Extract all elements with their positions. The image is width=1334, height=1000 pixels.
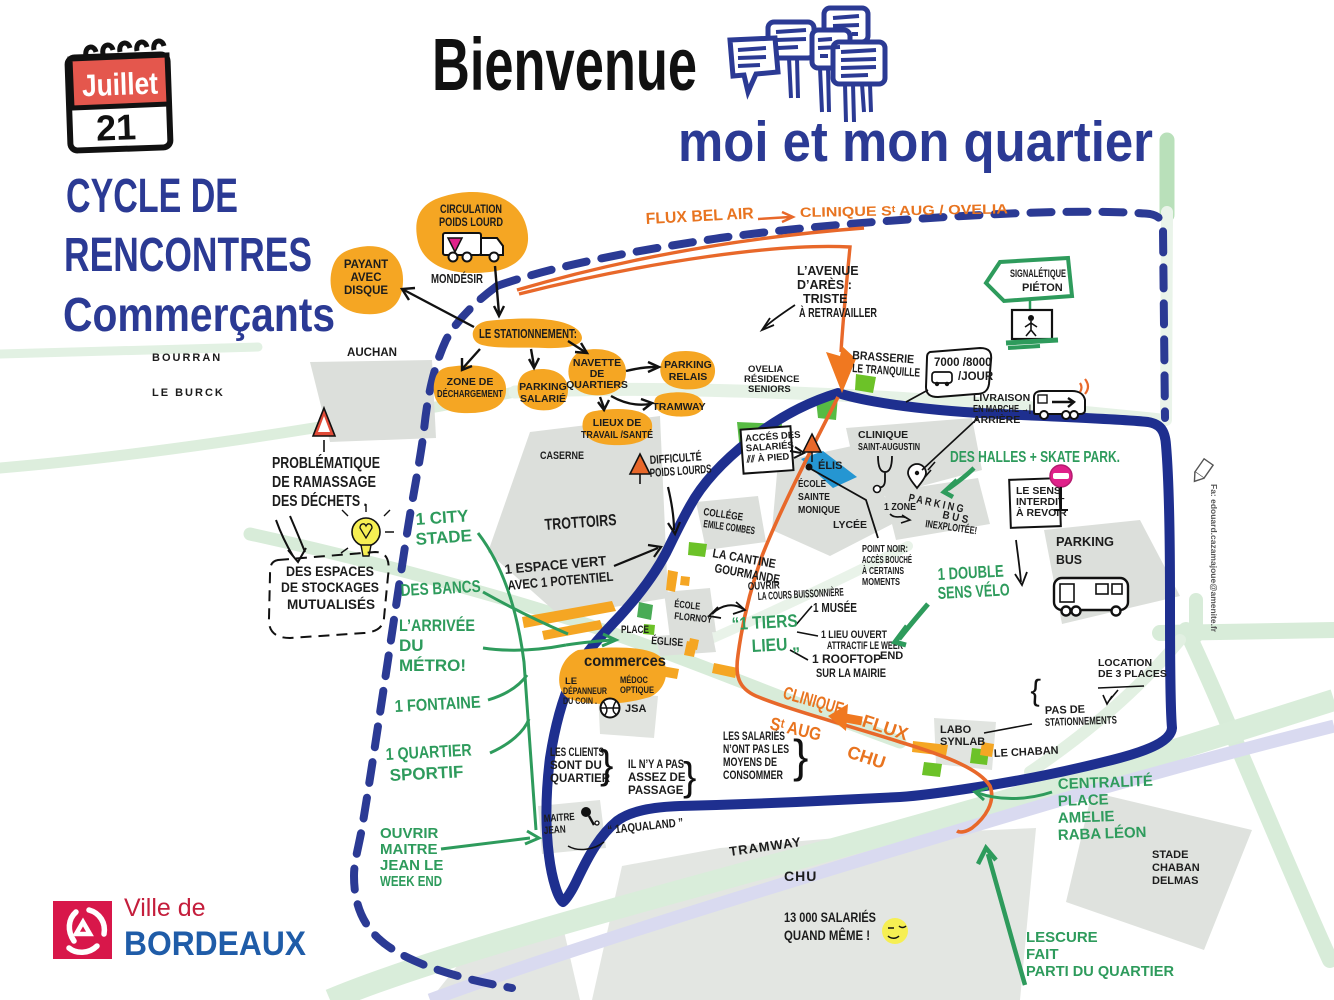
svg-text:LABO: LABO (940, 724, 972, 736)
svg-text:LIEUX DE: LIEUX DE (593, 417, 641, 429)
svg-text:POINT NOIR:: POINT NOIR: (862, 544, 908, 555)
svg-text:SYNLAB: SYNLAB (940, 736, 985, 748)
svg-text:commerces: commerces (584, 653, 666, 670)
svg-text:N’ONT PAS LES: N’ONT PAS LES (723, 744, 789, 756)
svg-text:JEAN LE: JEAN LE (380, 857, 443, 874)
svg-text:MAITRE: MAITRE (543, 811, 575, 825)
svg-text:PIÉTON: PIÉTON (1022, 281, 1063, 294)
svg-text:DU: DU (399, 636, 424, 655)
svg-text:FAIT: FAIT (1026, 946, 1059, 963)
svg-text:moi et mon quartier: moi et mon quartier (678, 110, 1153, 174)
svg-text:QUARTIERS: QUARTIERS (566, 379, 628, 391)
svg-text:SENIORS: SENIORS (748, 384, 791, 395)
svg-text:}: } (683, 755, 696, 799)
svg-text:TRAMWAY: TRAMWAY (652, 401, 705, 413)
svg-text:ÉCOLE: ÉCOLE (798, 477, 826, 490)
svg-text:1 MUSÉE: 1 MUSÉE (813, 600, 857, 615)
svg-text:Ville de: Ville de (124, 894, 206, 922)
svg-text:PASSAGE: PASSAGE (628, 785, 684, 797)
svg-text:SPORTIF: SPORTIF (389, 762, 464, 785)
svg-text:CIRCULATION: CIRCULATION (440, 204, 502, 216)
svg-text:PROBLÉMATIQUE: PROBLÉMATIQUE (272, 455, 380, 472)
svg-text:SUR LA MAIRIE: SUR LA MAIRIE (816, 666, 886, 680)
svg-text:MOMENTS: MOMENTS (862, 577, 900, 588)
svg-text:CONSOMMER: CONSOMMER (723, 770, 784, 782)
svg-text:MONDÉSIR: MONDÉSIR (431, 271, 483, 286)
svg-text:WEEK END: WEEK END (380, 873, 442, 890)
svg-text:/JOUR: /JOUR (958, 371, 994, 383)
svg-text:JEAN: JEAN (543, 823, 566, 837)
svg-text:13 000 SALARIÉS: 13 000 SALARIÉS (784, 910, 876, 925)
svg-text:PARKING: PARKING (1056, 534, 1114, 549)
svg-text:1 CITY: 1 CITY (415, 506, 470, 529)
svg-text:MÉTRO!: MÉTRO! (399, 656, 466, 675)
svg-text:D’ARÈS :: D’ARÈS : (797, 277, 852, 292)
svg-text:PARTI DU QUARTIER: PARTI DU QUARTIER (1026, 963, 1174, 980)
svg-text:7000 /8000: 7000 /8000 (934, 357, 992, 369)
svg-text:Juillet: Juillet (81, 66, 158, 104)
svg-text:CLINIQUE: CLINIQUE (858, 429, 908, 441)
svg-text:ASSEZ DE: ASSEZ DE (628, 772, 686, 784)
svg-text:OUVRIR: OUVRIR (380, 825, 439, 842)
svg-text:DELMAS: DELMAS (1152, 875, 1198, 887)
svg-text:PLACE: PLACE (621, 624, 649, 636)
svg-text:DE RAMASSAGE: DE RAMASSAGE (272, 474, 376, 491)
svg-text:SENS VÉLO: SENS VÉLO (937, 580, 1010, 603)
svg-text:SALARIÉ: SALARIÉ (520, 392, 566, 405)
svg-text:LIEU „: LIEU „ (751, 634, 800, 656)
svg-text:L’ARRIVÉE: L’ARRIVÉE (399, 616, 475, 635)
svg-text:STADE: STADE (415, 526, 473, 549)
svg-text:CENTRALITÉ: CENTRALITÉ (1058, 773, 1154, 793)
svg-text:SONT DU: SONT DU (550, 760, 602, 772)
svg-text:PARKING: PARKING (519, 381, 567, 393)
svg-text:CHABAN: CHABAN (1152, 862, 1200, 874)
svg-text:CASERNE: CASERNE (540, 450, 584, 462)
svg-text:BOURRAN: BOURRAN (152, 352, 222, 364)
svg-text:JSA: JSA (625, 703, 646, 715)
svg-text:STADE: STADE (1152, 849, 1188, 861)
svg-text:21: 21 (95, 106, 136, 148)
svg-text:LESCURE: LESCURE (1026, 929, 1098, 946)
svg-text:ZONE DE: ZONE DE (447, 376, 494, 388)
svg-text:Bienvenue: Bienvenue (432, 23, 697, 106)
svg-text:CYCLE DE: CYCLE DE (66, 170, 238, 223)
svg-text:STATIONNEMENTS: STATIONNEMENTS (1045, 714, 1117, 729)
svg-text:DES ESPACES: DES ESPACES (286, 564, 374, 579)
svg-text:TRAVAIL /SANTÉ: TRAVAIL /SANTÉ (581, 428, 653, 441)
svg-text:ÉLIS: ÉLIS (818, 459, 842, 472)
svg-text:OPTIQUE: OPTIQUE (620, 685, 654, 696)
svg-text:À RETRAVAILLER: À RETRAVAILLER (799, 305, 877, 320)
svg-text:ACCÈS BOUCHÉ: ACCÈS BOUCHÉ (862, 553, 912, 566)
svg-text:MUTUALISÉS: MUTUALISÉS (287, 597, 375, 612)
svg-text:À CERTAINS: À CERTAINS (862, 564, 904, 577)
svg-text:CHU: CHU (784, 868, 817, 884)
svg-text:L’AVENUE: L’AVENUE (797, 264, 859, 278)
svg-text:LES CLIENTS: LES CLIENTS (550, 747, 604, 759)
svg-text:LE STATIONNEMENT:: LE STATIONNEMENT: (479, 327, 577, 341)
svg-text:AMELIE: AMELIE (1058, 808, 1115, 827)
svg-text:AVEC: AVEC (350, 272, 381, 284)
svg-text:DES DÉCHETS .: DES DÉCHETS . (272, 493, 367, 510)
svg-text:À REVOIR: À REVOIR (1016, 506, 1067, 519)
svg-text:LYCÉE: LYCÉE (833, 518, 867, 531)
svg-text:TRISTE: TRISTE (803, 292, 847, 306)
svg-text:PLACE: PLACE (1058, 791, 1109, 810)
svg-text:DISQUE: DISQUE (344, 285, 388, 297)
svg-text:SAINT-AUGUSTIN: SAINT-AUGUSTIN (858, 441, 920, 453)
svg-text:DE 3 PLACES: DE 3 PLACES (1098, 668, 1167, 680)
svg-text:LE BURCK: LE BURCK (152, 387, 225, 399)
svg-text:RABA LÉON: RABA LÉON (1058, 824, 1147, 844)
svg-text:QUAND MÊME !: QUAND MÊME ! (784, 928, 870, 943)
svg-text:END: END (880, 650, 903, 662)
svg-text:MAITRE: MAITRE (380, 841, 438, 858)
svg-text:ARRIÈRE: ARRIÈRE (973, 413, 1020, 426)
svg-text:1 ZONE: 1 ZONE (884, 501, 916, 513)
svg-text:POIDS LOURD: POIDS LOURD (439, 217, 503, 229)
svg-text:PARKING: PARKING (664, 359, 712, 371)
svg-text:PAYANT: PAYANT (344, 259, 388, 271)
svg-text:DE STOCKAGES: DE STOCKAGES (281, 580, 379, 595)
svg-text:MOYENS DE: MOYENS DE (723, 757, 777, 769)
svg-text:Fa: edouard.cazamajoue@amenite: Fa: edouard.cazamajoue@amenite.fr (1209, 484, 1219, 633)
svg-text:}: } (600, 743, 613, 787)
svg-text:1 ROOFTOP: 1 ROOFTOP (812, 652, 881, 666)
svg-text:DES HALLES + SKATE PARK.: DES HALLES + SKATE PARK. (950, 449, 1120, 466)
svg-text:BUS: BUS (1056, 552, 1082, 567)
svg-text:RENCONTRES: RENCONTRES (64, 229, 312, 282)
svg-text:“1 TIERS: “1 TIERS (731, 611, 798, 634)
svg-text:ÉGLISE: ÉGLISE (651, 634, 684, 649)
svg-text:AUCHAN: AUCHAN (347, 347, 397, 359)
svg-text:BORDEAUX: BORDEAUX (124, 925, 306, 963)
svg-text:IL N’Y A PAS: IL N’Y A PAS (628, 759, 684, 771)
svg-text:MONIQUE: MONIQUE (798, 504, 840, 516)
svg-text:DÉCHARGEMENT: DÉCHARGEMENT (437, 387, 503, 400)
svg-text:RELAIS: RELAIS (669, 371, 708, 383)
svg-text:SAINTE: SAINTE (798, 491, 830, 503)
svg-text:DU COIN .: DU COIN . (563, 696, 597, 707)
svg-text:SIGNALÉTIQUE: SIGNALÉTIQUE (1010, 267, 1066, 280)
svg-text:{: { (1030, 674, 1042, 707)
svg-text:Commerçants: Commerçants (63, 289, 335, 342)
